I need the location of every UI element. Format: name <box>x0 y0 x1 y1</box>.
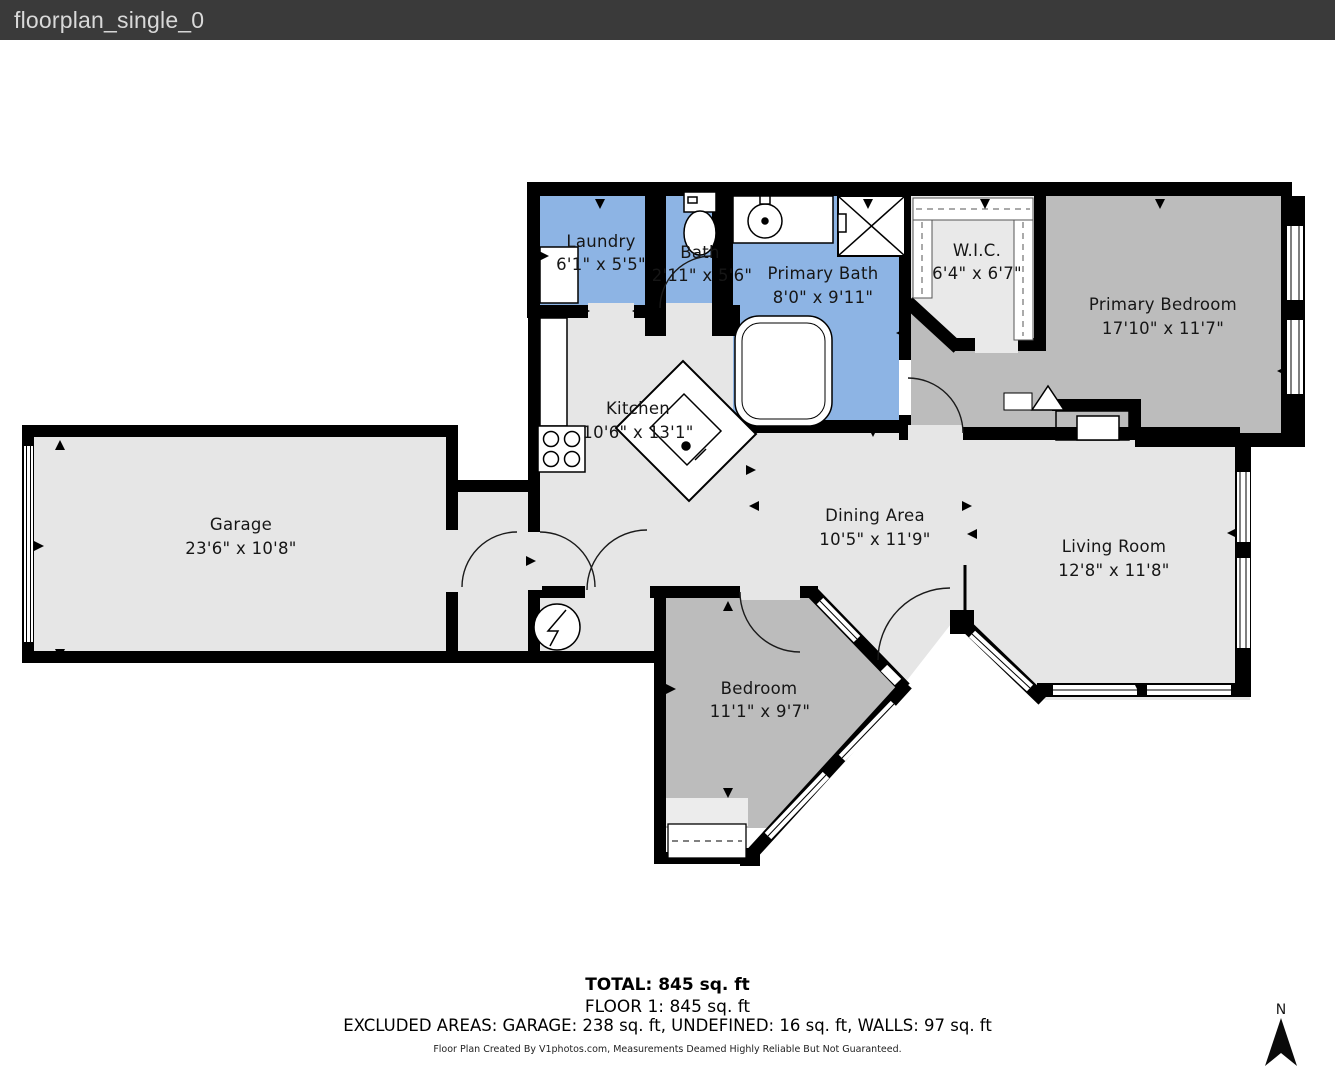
pbed-niche-box <box>1004 393 1032 410</box>
garage-door <box>24 446 33 642</box>
label-primary-bedroom: Primary Bedroom <box>1089 295 1237 314</box>
dims-bedroom: 11'1" x 9'7" <box>710 702 811 721</box>
wall-corridor-top <box>446 480 540 492</box>
burner-2 <box>565 432 580 447</box>
wall-entry-post <box>950 610 974 634</box>
dims-bath: 2'11" x 5'6" <box>652 266 753 285</box>
wall-garage-top <box>22 425 458 437</box>
stove <box>538 426 585 472</box>
label-bedroom: Bedroom <box>721 679 798 698</box>
label-dining: Dining Area <box>825 506 925 525</box>
window-living-e2 <box>1237 558 1250 648</box>
dims-dining: 10'5" x 11'9" <box>819 530 930 549</box>
wall-pbed-south-west <box>1052 399 1141 411</box>
opening-garage-corridor <box>444 530 460 592</box>
label-garage: Garage <box>210 515 272 534</box>
opening-bath <box>666 303 712 338</box>
kitchen-counter <box>540 318 567 426</box>
burner-1 <box>544 432 559 447</box>
summary-excluded: EXCLUDED AREAS: GARAGE: 238 sq. ft, UNDE… <box>0 1016 1335 1035</box>
label-wic: W.I.C. <box>953 241 1001 260</box>
label-bath: Bath <box>680 243 720 262</box>
window-pbed-1 <box>1287 226 1303 300</box>
shower-valve <box>838 214 846 232</box>
wall-garage-right-a <box>446 437 458 530</box>
label-living: Living Room <box>1062 537 1167 556</box>
summary-floor1: FLOOR 1: 845 sq. ft <box>0 997 1335 1017</box>
wall-wic-right <box>1034 196 1046 351</box>
label-kitchen: Kitchen <box>606 399 670 418</box>
wall-kitchen-west <box>528 305 540 533</box>
bathtub-inner <box>742 323 825 419</box>
floorplan-drawing: Laundry 6'1" x 5'5" Bath 2'11" x 5'6" Pr… <box>0 0 1335 1080</box>
sink-faucet <box>760 196 770 204</box>
opening-primary-bedroom <box>908 425 963 442</box>
opening-wic <box>975 336 1018 353</box>
window-pbed-2 <box>1287 320 1303 394</box>
toilet-flush <box>688 197 697 203</box>
wall-dining-north-a <box>899 427 908 440</box>
dims-kitchen: 10'6" x 13'1" <box>582 423 693 442</box>
dims-living: 12'8" x 11'8" <box>1058 561 1169 580</box>
north-arrow-icon <box>1265 1018 1297 1066</box>
bedroom-closet-floor <box>664 798 748 826</box>
burner-4 <box>565 452 580 467</box>
summary-total: TOTAL: 845 sq. ft <box>0 975 1335 995</box>
opening-primary-bath <box>899 360 911 415</box>
wall-garage-bottom <box>22 651 666 663</box>
dims-wic: 6'4" x 6'7" <box>932 264 1022 283</box>
opening-bedroom <box>740 584 800 600</box>
water-heater <box>534 604 580 650</box>
wall-bedroom-top-a <box>654 586 740 598</box>
dims-primary-bedroom: 17'10" x 11'7" <box>1102 319 1224 338</box>
window-living-e1 <box>1237 472 1250 542</box>
wall-chase-1 <box>645 189 666 318</box>
burner-3 <box>544 452 559 467</box>
dims-laundry: 6'1" x 5'5" <box>556 255 646 274</box>
island-drain <box>682 442 690 450</box>
wall-laundry-left <box>527 182 540 318</box>
dims-primary-bath: 8'0" x 9'11" <box>773 288 874 307</box>
wall-pbed-south-east <box>1135 433 1292 447</box>
chimney-box <box>1077 416 1119 440</box>
compass: N <box>1252 996 1312 1074</box>
wall-bedroom-left <box>654 586 666 864</box>
opening-laundry <box>588 303 634 320</box>
dims-garage: 23'6" x 10'8" <box>185 539 296 558</box>
compass-north-label: N <box>1276 1002 1286 1018</box>
sink-drain <box>762 218 768 224</box>
label-primary-bath: Primary Bath <box>768 264 879 283</box>
label-laundry: Laundry <box>566 232 635 251</box>
summary-credit: Floor Plan Created By V1photos.com, Meas… <box>0 1044 1335 1055</box>
